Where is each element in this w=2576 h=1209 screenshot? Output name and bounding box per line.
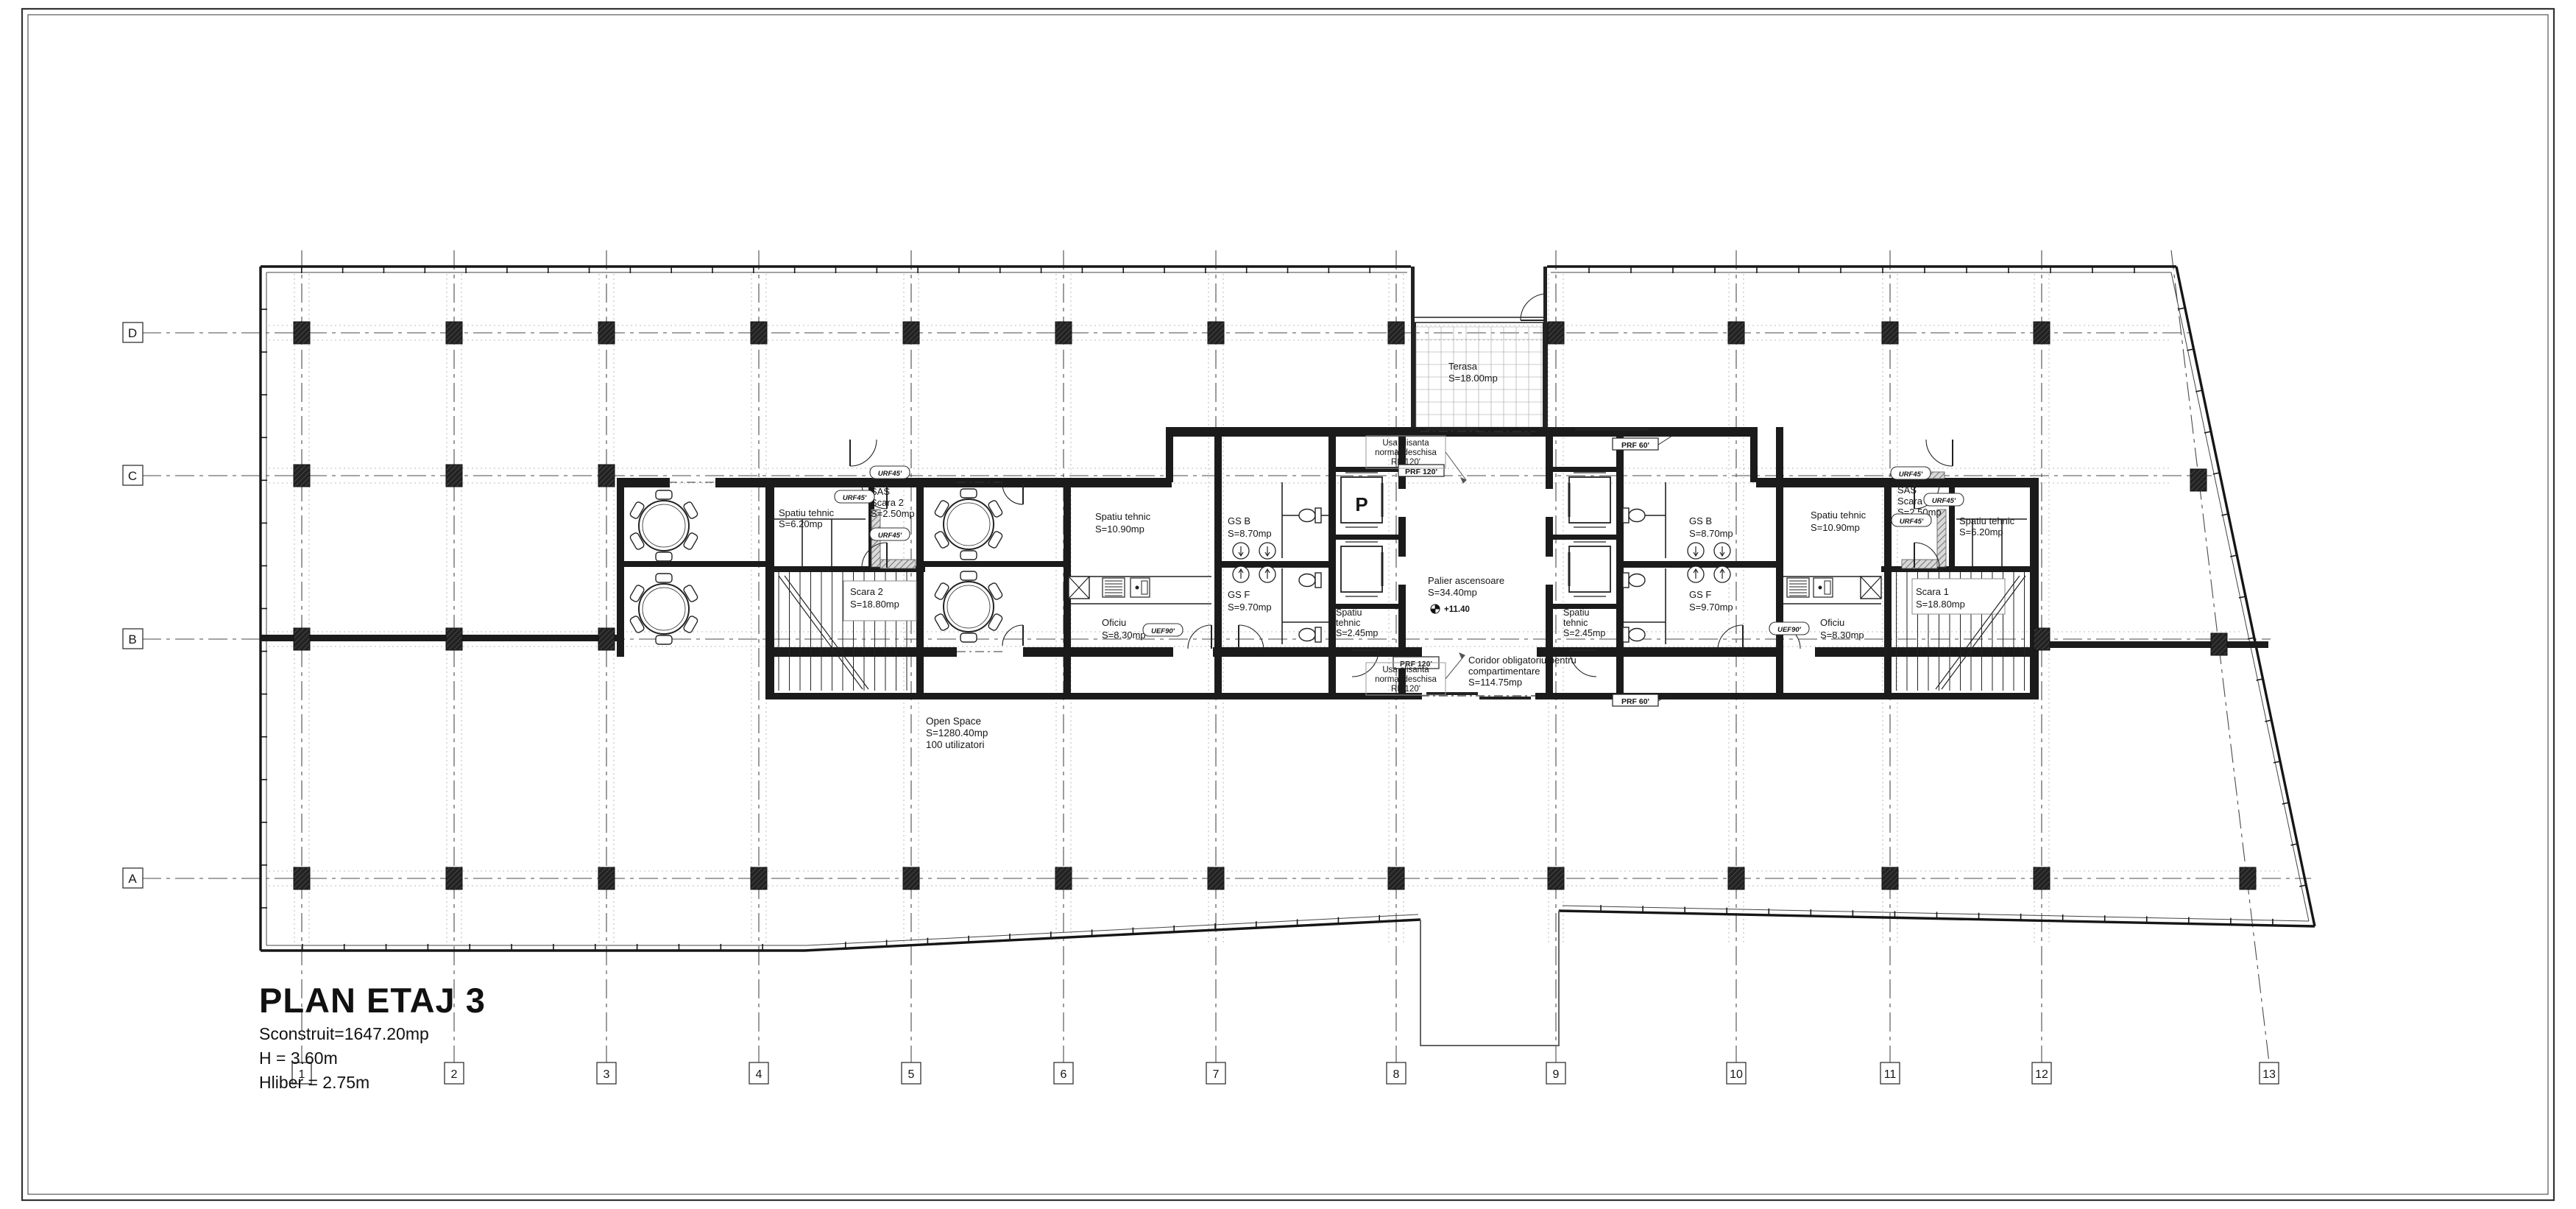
terrace xyxy=(1411,267,1548,436)
level-marker-label: +11.40 xyxy=(1444,605,1470,614)
round-table xyxy=(934,489,1003,560)
door-tag-tag_prf120: PRF 120' xyxy=(1405,468,1437,476)
room-label-scara1: Scara 1 xyxy=(1916,586,1949,597)
room-label-scara1: S=18.80mp xyxy=(1916,599,1965,610)
room-label-st620_r: Spatiu tehnic xyxy=(1959,515,2015,526)
room-label-gsf_l: GS F xyxy=(1228,589,1250,600)
room-label-oficiu_r: Oficiu xyxy=(1820,617,1844,628)
door-tag-tag_urf45: URF45' xyxy=(878,470,902,478)
room-label-coridor: S=114.75mp xyxy=(1468,677,1522,688)
room-label-gsb_l: S=8.70mp xyxy=(1228,528,1272,539)
sliding-door-note: RF 120' xyxy=(1391,458,1420,467)
room-label-terasa: S=18.00mp xyxy=(1448,373,1498,384)
door-tag-tag_urf45: URF45' xyxy=(1900,518,1924,526)
room-label-st620_l: Spatiu tehnic xyxy=(779,507,835,518)
grid-bubble-col-label-10: 10 xyxy=(1730,1068,1743,1081)
grid-bubble-col-label-12: 12 xyxy=(2035,1068,2048,1081)
room-label-gsb_r: GS B xyxy=(1689,515,1712,526)
grid-bubble-col-label-5: 5 xyxy=(908,1068,915,1081)
built-area-note: Sconstruit=1647.20mp xyxy=(259,1022,486,1046)
room-label-st245_r: S=2.45mp xyxy=(1563,628,1605,638)
room-label-gsb_r: S=8.70mp xyxy=(1689,528,1733,539)
room-label-palier: Palier ascensoare xyxy=(1428,575,1504,586)
door-tag-tag_urf45: URF45' xyxy=(843,494,867,502)
grid-bubble-col-label-3: 3 xyxy=(604,1068,610,1081)
room-label-st245_l: Spatiu xyxy=(1336,607,1362,618)
room-label-gsf_r: S=9.70mp xyxy=(1689,602,1733,613)
room-label-open_space: Open Space xyxy=(926,716,981,727)
room-label-gsf_l: S=9.70mp xyxy=(1228,602,1272,613)
sliding-door-note: normal deschisa xyxy=(1375,675,1437,684)
grid-bubble-label-B: B xyxy=(128,632,136,646)
room-label-scara2: Scara 2 xyxy=(850,586,883,597)
room-label-st245_l: S=2.45mp xyxy=(1336,628,1378,638)
round-table xyxy=(629,574,698,644)
grid-bubble-col-label-7: 7 xyxy=(1213,1068,1220,1081)
title-block: PLAN ETAJ 3 Sconstruit=1647.20mp H = 3.6… xyxy=(259,979,486,1095)
room-label-coridor: compartimentare xyxy=(1468,666,1540,677)
grid-bubble-col-label-11: 11 xyxy=(1884,1068,1897,1081)
room-label-st1090_l: Spatiu tehnic xyxy=(1095,511,1151,522)
room-label-terasa: Terasa xyxy=(1448,361,1478,372)
walls xyxy=(261,427,2268,699)
door-tag-tag_urf45: URF45' xyxy=(878,532,902,540)
grid-bubble-label-D: D xyxy=(128,326,137,340)
grid-bubble-col-label-4: 4 xyxy=(756,1068,762,1081)
room-label-gsb_l: GS B xyxy=(1228,515,1250,526)
room-label-st620_l: S=6.20mp xyxy=(779,518,823,529)
room-label-st1090_r: S=10.90mp xyxy=(1811,522,1860,533)
elevator-p-label: P xyxy=(1355,493,1367,515)
grid-bubble-label-C: C xyxy=(128,469,137,483)
height-note: H = 3.60m xyxy=(259,1046,486,1071)
room-label-st1090_r: Spatiu tehnic xyxy=(1811,510,1866,521)
grid-bubble-col-label-6: 6 xyxy=(1061,1068,1067,1081)
door-tag-tag_prf60: PRF 60' xyxy=(1621,697,1649,706)
room-label-sas2: S=2.50mp xyxy=(871,508,915,519)
room-label-coridor: Coridor obligatoriu pentru xyxy=(1468,655,1577,666)
page-title: PLAN ETAJ 3 xyxy=(259,979,486,1022)
door-tag-tag_urf45: URF45' xyxy=(1899,470,1923,479)
grid-bubble-label-A: A xyxy=(128,872,137,886)
sliding-door-note: RF 120' xyxy=(1391,685,1420,694)
room-label-oficiu_l: Oficiu xyxy=(1102,617,1126,628)
room-label-st245_l: tehnic xyxy=(1336,618,1360,628)
sliding-door-note: Usa glisanta xyxy=(1382,439,1429,448)
door-tag-tag_prf60: PRF 60' xyxy=(1621,441,1649,450)
sliding-door-note: normal deschisa xyxy=(1375,448,1437,457)
room-label-open_space: S=1280.40mp xyxy=(926,727,988,739)
room-label-oficiu_l: S=8.30mp xyxy=(1102,630,1146,641)
door-tag-tag_urf45: URF45' xyxy=(1932,497,1956,505)
room-label-open_space: 100 utilizatori xyxy=(926,739,985,750)
round-table xyxy=(629,490,698,561)
clear-height-note: Hliber = 2.75m xyxy=(259,1071,486,1095)
room-label-sas2: Scara 2 xyxy=(871,497,904,508)
grid-bubble-col-label-8: 8 xyxy=(1393,1068,1400,1081)
room-label-st245_r: tehnic xyxy=(1563,618,1588,628)
room-label-st1090_l: S=10.90mp xyxy=(1095,524,1144,535)
room-label-st245_r: Spatiu xyxy=(1563,607,1589,618)
room-label-palier: S=34.40mp xyxy=(1428,587,1477,598)
door-tag-tag_uef90: UEF90' xyxy=(1777,626,1802,634)
grid-bubble-col-label-13: 13 xyxy=(2262,1068,2276,1081)
grid-bubble-col-label-9: 9 xyxy=(1553,1068,1560,1081)
room-label-oficiu_r: S=8.30mp xyxy=(1820,630,1864,641)
drawing-sheet: DCBA12345678910111213POpen SpaceS=1280.4… xyxy=(0,0,2576,1209)
room-label-scara2: S=18.80mp xyxy=(850,599,899,610)
room-label-st620_r: S=6.20mp xyxy=(1959,526,2003,537)
door-tag-tag_uef90: UEF90' xyxy=(1151,627,1175,635)
sliding-door-note: Usa glisanta xyxy=(1382,666,1429,674)
room-label-sas1: SAS xyxy=(1897,484,1917,496)
grid-bubbles: DCBA12345678910111213 xyxy=(123,322,2279,1084)
room-label-gsf_r: GS F xyxy=(1689,589,1711,600)
